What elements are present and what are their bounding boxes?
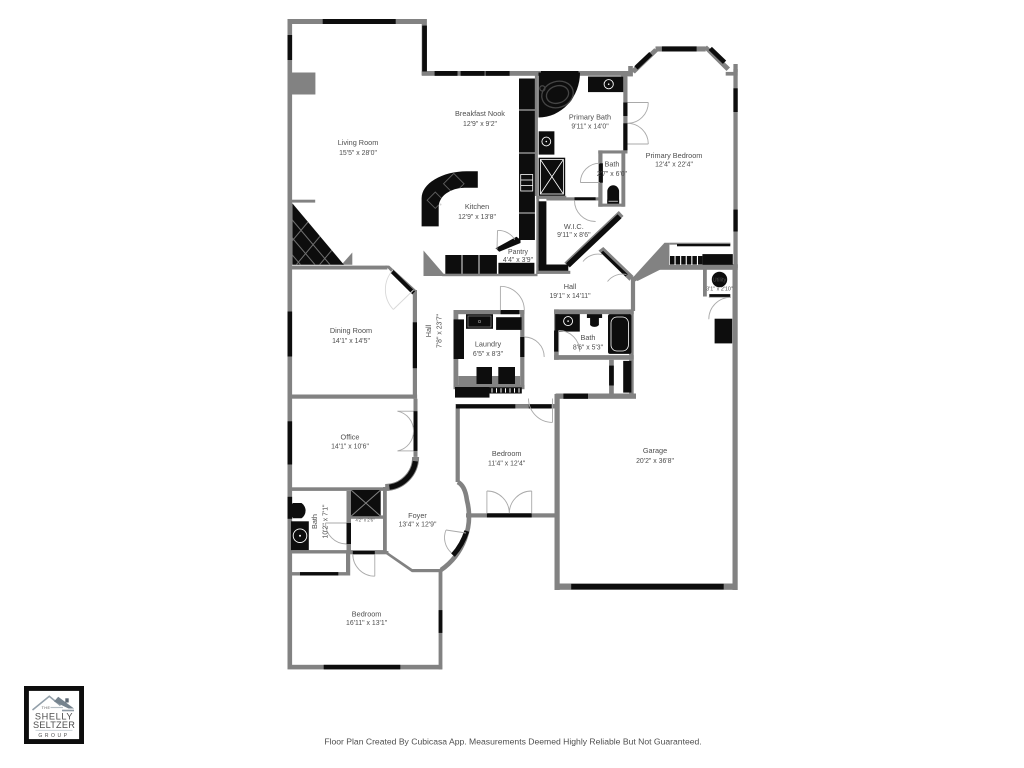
- svg-text:Bath: Bath: [310, 514, 319, 529]
- svg-text:Living Room: Living Room: [338, 138, 379, 147]
- svg-text:2'7" x 6'0": 2'7" x 6'0": [597, 171, 628, 178]
- svg-text:THE: THE: [42, 706, 51, 710]
- svg-text:Breakfast Nook: Breakfast Nook: [455, 109, 505, 118]
- svg-text:12'9" x 13'8": 12'9" x 13'8": [458, 214, 496, 221]
- svg-text:Primary Bedroom: Primary Bedroom: [646, 151, 703, 160]
- svg-text:13'4" x 12'9": 13'4" x 12'9": [399, 521, 437, 528]
- svg-text:19'1" x 14'11": 19'1" x 14'11": [549, 293, 591, 300]
- svg-text:Dining Room: Dining Room: [330, 326, 372, 335]
- svg-text:14'1" x 14'5": 14'1" x 14'5": [332, 338, 370, 345]
- svg-text:Garage: Garage: [643, 446, 667, 455]
- svg-text:Utility: Utility: [713, 278, 727, 284]
- svg-text:Bedroom: Bedroom: [492, 449, 522, 458]
- svg-text:GROUP: GROUP: [38, 733, 69, 739]
- svg-text:Foyer: Foyer: [408, 511, 427, 520]
- svg-text:Floor Plan Created By Cubicasa: Floor Plan Created By Cubicasa App. Meas…: [324, 737, 701, 747]
- svg-text:20'2" x 36'8": 20'2" x 36'8": [636, 458, 674, 465]
- svg-text:10'2" x 7'1": 10'2" x 7'1": [323, 504, 330, 539]
- svg-text:Hall: Hall: [424, 324, 433, 337]
- svg-text:4'2" x 2'6": 4'2" x 2'6": [355, 518, 375, 523]
- svg-text:Office: Office: [341, 433, 360, 442]
- svg-text:Laundry: Laundry: [475, 340, 502, 349]
- svg-text:SELTZER: SELTZER: [33, 720, 75, 730]
- svg-text:Pantry: Pantry: [508, 249, 528, 256]
- svg-text:4'4" x 3'9": 4'4" x 3'9": [503, 257, 534, 264]
- svg-text:15'5" x 28'0": 15'5" x 28'0": [339, 150, 377, 157]
- svg-text:8'6" x 5'3": 8'6" x 5'3": [573, 345, 604, 352]
- svg-text:Bath: Bath: [604, 160, 619, 169]
- svg-text:6'5" x 8'3": 6'5" x 8'3": [473, 351, 504, 358]
- svg-text:9'11" x 8'6": 9'11" x 8'6": [557, 232, 591, 239]
- svg-text:Bedroom: Bedroom: [352, 610, 382, 619]
- svg-text:Kitchen: Kitchen: [465, 202, 489, 211]
- svg-text:7'8" x 23'7": 7'8" x 23'7": [437, 313, 444, 348]
- svg-text:3'1" x 2'10": 3'1" x 2'10": [706, 287, 733, 293]
- svg-text:Primary Bath: Primary Bath: [569, 113, 611, 122]
- svg-text:12'4" x 22'4": 12'4" x 22'4": [655, 162, 693, 169]
- svg-text:W.I.C.: W.I.C.: [564, 222, 584, 231]
- svg-text:16'11" x 13'1": 16'11" x 13'1": [346, 620, 388, 627]
- svg-text:11'4" x 12'4": 11'4" x 12'4": [488, 461, 526, 468]
- svg-text:Hall: Hall: [564, 282, 577, 291]
- svg-text:14'1" x 10'6": 14'1" x 10'6": [331, 443, 369, 450]
- svg-text:9'11" x 14'0": 9'11" x 14'0": [571, 123, 609, 130]
- svg-text:12'9" x 9'2": 12'9" x 9'2": [463, 121, 498, 128]
- svg-text:Bath: Bath: [580, 333, 595, 342]
